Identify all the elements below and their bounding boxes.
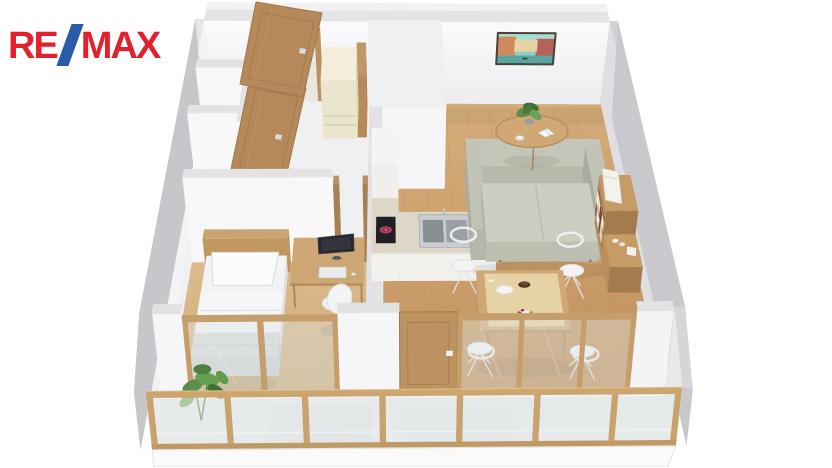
wall-painting-venice [496, 33, 556, 65]
partition-doors [151, 301, 674, 397]
balcony-glazing [146, 387, 682, 466]
real-estate-floorplan-page: RE / MAX [0, 0, 832, 468]
floor-plan-3d [0, 0, 832, 468]
logo-max: MAX [81, 29, 159, 63]
logo-slash-icon: / [56, 24, 83, 66]
remax-logo: RE / MAX [8, 24, 159, 63]
hall-wardrobe [321, 43, 368, 139]
logo-re: RE [8, 29, 57, 63]
